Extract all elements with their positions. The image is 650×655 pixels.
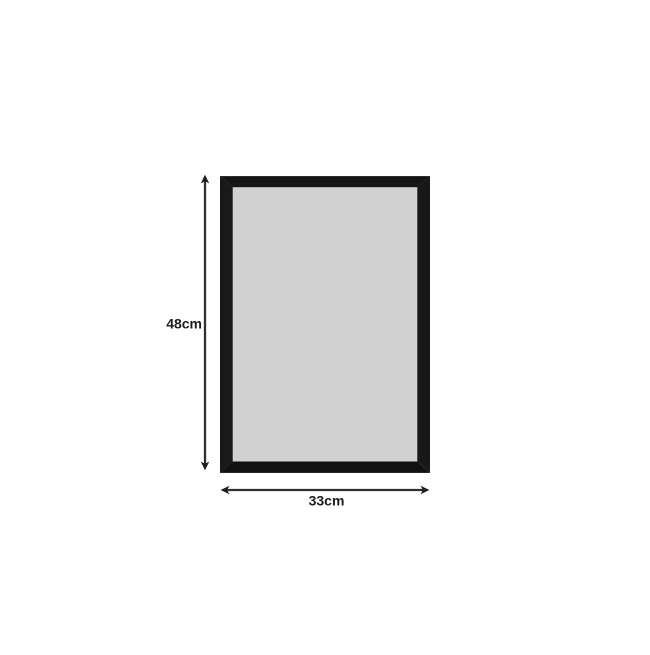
svg-text:33cm: 33cm — [309, 493, 345, 509]
svg-text:48cm: 48cm — [166, 316, 202, 332]
